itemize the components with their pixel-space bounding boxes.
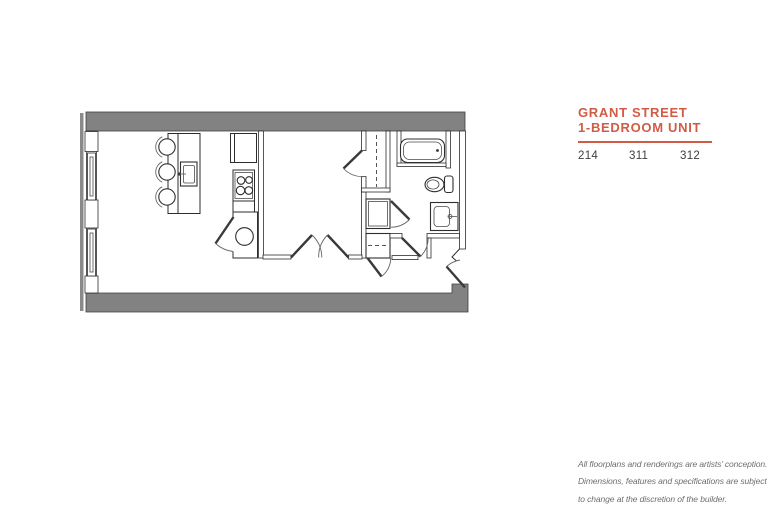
burner-icon xyxy=(237,177,245,185)
linen-closet xyxy=(366,234,391,277)
burner-icon xyxy=(245,187,253,195)
tub-wall xyxy=(397,163,446,167)
bottom-wall xyxy=(86,284,468,312)
disclaimer-text: All floorplans and renderings are artist… xyxy=(578,456,778,508)
burner-icon xyxy=(246,177,253,184)
door-leaf xyxy=(216,217,234,244)
window xyxy=(88,153,96,200)
disclaimer-line-1: All floorplans and renderings are artist… xyxy=(578,456,778,473)
entry-door xyxy=(447,260,466,288)
unit-number: 311 xyxy=(629,150,680,162)
door-leaf xyxy=(368,258,382,277)
wall-pier xyxy=(85,276,98,293)
title-divider xyxy=(578,141,712,143)
refrigerator xyxy=(231,134,257,163)
hall-walls xyxy=(390,234,460,260)
bathtub xyxy=(401,139,445,163)
washer-dryer xyxy=(366,199,410,229)
kitchen-counter xyxy=(233,201,255,212)
unit-info-panel: GRANT STREET 1-BEDROOM UNIT 214 311 312 xyxy=(578,105,778,162)
unit-number: 214 xyxy=(578,150,629,162)
disclaimer-line-2: Dimensions, features and specifications … xyxy=(578,473,778,490)
sink-vanity xyxy=(431,203,459,231)
window xyxy=(88,229,96,276)
wall-pier xyxy=(85,132,98,152)
island-sink xyxy=(178,162,197,186)
disclaimer-line-3: to change at the discretion of the build… xyxy=(578,491,778,508)
right-wall xyxy=(452,131,466,261)
drain-icon xyxy=(436,149,439,152)
stove xyxy=(233,170,255,201)
left-wall-face xyxy=(80,113,84,311)
bedroom-door xyxy=(344,151,366,177)
title-line-2: 1-BEDROOM UNIT xyxy=(578,120,778,135)
bar-stools xyxy=(156,137,175,207)
page-background: GRANT STREET 1-BEDROOM UNIT 214 311 312 … xyxy=(0,0,780,517)
floorplan-drawing xyxy=(78,104,480,320)
unit-number-list: 214 311 312 xyxy=(578,150,778,162)
bathroom-door xyxy=(402,238,428,257)
tub-wall xyxy=(446,131,451,168)
bedroom-walls xyxy=(259,131,367,259)
burner-icon xyxy=(236,186,244,194)
top-wall xyxy=(86,112,465,131)
title-line-1: GRANT STREET xyxy=(578,105,778,120)
unit-number: 312 xyxy=(680,150,731,162)
page-title: GRANT STREET 1-BEDROOM UNIT xyxy=(578,105,778,135)
wall-pier xyxy=(85,200,98,228)
toilet xyxy=(425,176,453,193)
left-wall xyxy=(85,131,98,293)
bedroom-double-doors xyxy=(291,235,349,258)
utility-closet xyxy=(216,212,258,258)
water-heater-icon xyxy=(236,228,254,246)
door-leaf xyxy=(391,201,410,220)
